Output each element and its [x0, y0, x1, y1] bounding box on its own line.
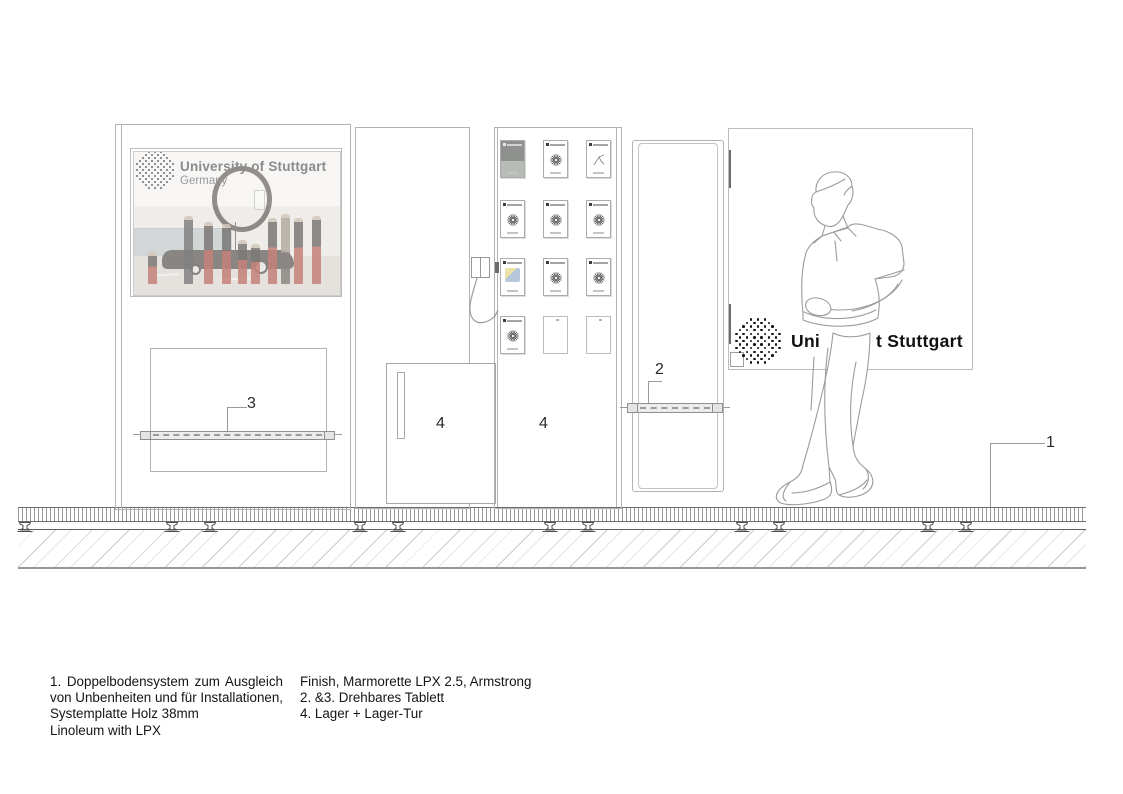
note-line: Finish, Marmorette LPX 2.5, Armstrong [300, 674, 531, 690]
floor-pedestal [351, 519, 369, 529]
team-member [184, 216, 193, 284]
mini-poster-sunburst [543, 200, 568, 238]
note-line: 2. &3. Drehbares Tablett [300, 690, 531, 706]
elevation-drawing: University of Stuttgart Germany 3 4 4 2 [0, 0, 1123, 794]
floor-pedestal [733, 519, 751, 529]
team-member [268, 218, 277, 284]
floor-pedestal [201, 519, 219, 529]
callout-4-door: 4 [436, 416, 445, 432]
mini-poster-blank [543, 316, 568, 354]
wall-recess-3 [150, 348, 327, 472]
rotating-shelf-2 [627, 403, 723, 413]
floor-pedestal [389, 519, 407, 529]
leader-line-3 [227, 407, 228, 431]
team-photo-poster: University of Stuttgart Germany [130, 148, 342, 297]
team-member [312, 216, 321, 284]
rotating-shelf-3 [140, 431, 335, 440]
team-member [251, 244, 260, 284]
team-member [238, 240, 247, 284]
university-logo-dots [135, 151, 175, 190]
sponsor-label [254, 190, 265, 210]
photo-frame: University of Stuttgart Germany [133, 151, 341, 296]
note-line: von Unbenheiten und für Installationen, [50, 690, 283, 706]
poster-country-label: Germany [180, 175, 227, 187]
mini-poster-photo [500, 140, 525, 178]
team-member [281, 214, 290, 284]
team-member [294, 218, 303, 284]
floor-pedestal [541, 519, 559, 529]
mini-poster-sunburst [543, 258, 568, 296]
mini-poster-sunburst [500, 200, 525, 238]
note-line: 1. Doppelbodensystem zum Ausgleich [50, 674, 283, 690]
concrete-slab-hatch [18, 529, 1086, 569]
team-member [148, 252, 157, 284]
team-member [222, 224, 231, 284]
left-wall-inner-line [121, 124, 122, 508]
team-member [204, 222, 213, 284]
floor-pedestal [919, 519, 937, 529]
floor-pedestal [770, 519, 788, 529]
mini-poster-blank [586, 316, 611, 354]
callout-2: 2 [655, 362, 664, 378]
cord-bracket [495, 262, 499, 273]
mini-poster-sunburst [543, 140, 568, 178]
note-line: Linoleum with LPX [50, 723, 283, 739]
floor-pedestal [957, 519, 975, 529]
callout-1: 1 [1046, 435, 1055, 451]
mini-poster-sunburst [500, 316, 525, 354]
leader-line-1 [990, 443, 991, 507]
mini-poster-sketch [586, 140, 611, 178]
mini-poster-chart [500, 258, 525, 296]
floor-pedestal [163, 519, 181, 529]
mini-poster-sunburst [586, 258, 611, 296]
leader-line-2 [648, 381, 649, 403]
callout-3: 3 [247, 396, 256, 412]
notes-column-2: Finish, Marmorette LPX 2.5, Armstrong 2.… [300, 674, 531, 723]
callout-4-wall: 4 [539, 416, 548, 432]
mini-poster-sunburst [586, 200, 611, 238]
floor-pedestal [579, 519, 597, 529]
door-handle [397, 372, 405, 439]
tall-door-inner-line [638, 143, 718, 489]
floor-pedestal [16, 519, 34, 529]
person-sketch [768, 162, 918, 512]
poster-university-name: University of Stuttgart [180, 159, 326, 174]
note-line: Systemplatte Holz 38mm [50, 706, 283, 722]
notes-column-1: 1. Doppelbodensystem zum Ausgleich von U… [50, 674, 283, 739]
note-line: 4. Lager + Lager-Tur [300, 706, 531, 722]
